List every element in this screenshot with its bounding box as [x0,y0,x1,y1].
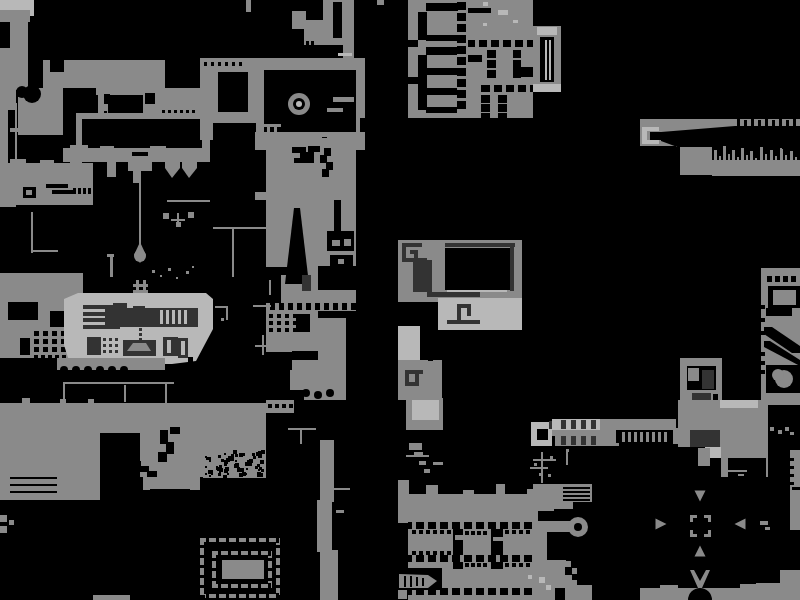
world-map-canvas[interactable] [0,0,800,600]
game-map-screen [0,0,800,600]
